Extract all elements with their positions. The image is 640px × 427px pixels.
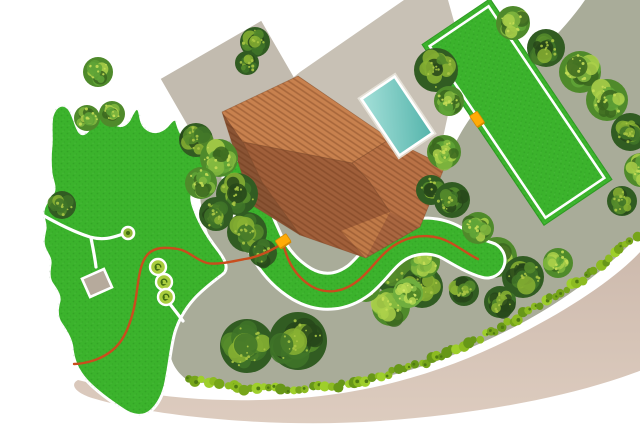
hedge-bush bbox=[605, 255, 613, 263]
potted-plant bbox=[156, 274, 172, 290]
hedge-bush bbox=[536, 303, 543, 310]
tree-icon bbox=[99, 101, 125, 127]
hedge-bush bbox=[476, 336, 484, 344]
tree-icon bbox=[393, 278, 423, 308]
hedge-bush bbox=[368, 373, 377, 382]
hedge-bush bbox=[470, 336, 477, 343]
tree-icon bbox=[543, 248, 573, 278]
tree-icon bbox=[235, 51, 259, 75]
potted-plant bbox=[158, 289, 174, 305]
tree-icon bbox=[74, 105, 100, 131]
tree-icon bbox=[185, 167, 217, 199]
hedge-bush bbox=[214, 379, 224, 389]
tree-icon bbox=[462, 212, 494, 244]
hedge-bush bbox=[491, 329, 498, 336]
hedge-bush bbox=[546, 293, 553, 300]
hedge-bush bbox=[377, 372, 386, 381]
tree-icon bbox=[607, 186, 637, 216]
garden-plan-screen: Garden property plan bbox=[0, 0, 640, 427]
tree-icon bbox=[527, 29, 565, 67]
potted-plant bbox=[150, 259, 166, 275]
tree-icon bbox=[414, 48, 458, 92]
tree-icon bbox=[496, 6, 530, 40]
tree-icon bbox=[586, 79, 628, 121]
tree-icon bbox=[269, 312, 327, 370]
tree-icon bbox=[434, 86, 464, 116]
hedge-bush bbox=[338, 379, 345, 386]
hedge-bush bbox=[198, 376, 205, 383]
hedge-bush bbox=[579, 277, 588, 286]
tree-icon bbox=[199, 197, 233, 231]
tree-icon bbox=[434, 182, 470, 218]
tree-icon bbox=[83, 57, 113, 87]
garden-plan-map bbox=[0, 0, 640, 427]
hedge-bush bbox=[589, 267, 597, 275]
hedge-bush bbox=[524, 306, 532, 314]
tree-icon bbox=[220, 319, 274, 373]
